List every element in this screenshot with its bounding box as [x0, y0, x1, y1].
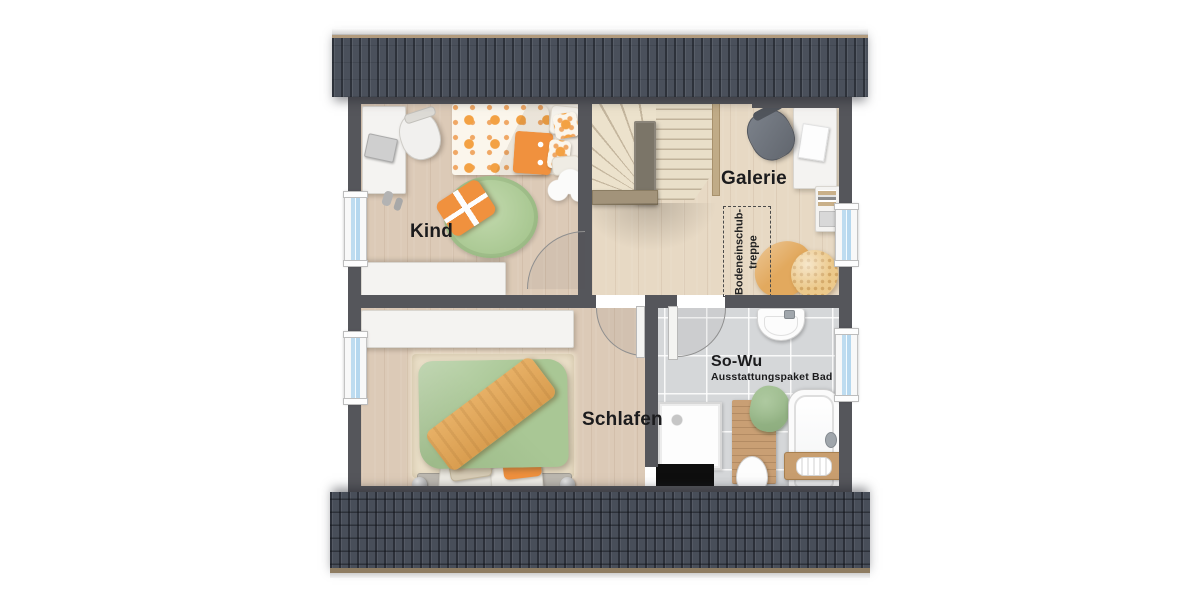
bathtub-faucet-icon	[825, 432, 837, 448]
window-cap	[834, 395, 859, 402]
window-glass	[842, 210, 850, 260]
label-room-galerie: Galerie	[721, 168, 787, 190]
stairs-handrail	[712, 100, 720, 196]
window-glass	[351, 338, 359, 398]
pouf-icon	[791, 250, 838, 298]
wall-kind-schlafen	[361, 295, 596, 308]
roof-bottom-fascia	[330, 573, 870, 578]
pillow-polka-1	[552, 111, 580, 140]
stairs-flight	[656, 100, 712, 200]
label-room-schlafen: Schlafen	[582, 409, 663, 431]
loft-ladder-icon: Bodeneinschub- treppe	[723, 206, 771, 297]
roof-top-batten	[332, 35, 868, 38]
wall-right	[839, 95, 852, 500]
label-room-kind: Kind	[410, 221, 453, 243]
door-leaf-schlafen	[636, 306, 645, 358]
caddy-towel	[796, 457, 832, 476]
stairs-shadow	[592, 203, 722, 255]
washbasin-faucet-icon	[784, 310, 795, 319]
window-cap	[834, 328, 859, 335]
label-bad-title: So-Wu	[711, 353, 762, 371]
window-cap	[834, 203, 859, 210]
window-galerie-right	[835, 204, 858, 266]
roof-top-fascia	[332, 28, 868, 35]
roof-top	[332, 28, 868, 97]
loft-ladder-line1: Bodeneinschub-	[733, 208, 747, 294]
floor-plan: Bodeneinschub- treppe Kind Galerie	[0, 0, 1200, 600]
bed-kind	[452, 104, 580, 175]
bathtub-caddy	[784, 452, 844, 480]
wall-bad-left	[645, 295, 658, 467]
wardrobe-schlafen	[361, 310, 574, 348]
wall-bad-top-right	[725, 295, 839, 308]
window-cap	[834, 260, 859, 267]
wardrobe-kind	[361, 262, 506, 297]
loft-ladder-label: Bodeneinschub- treppe	[733, 208, 762, 294]
window-glass	[351, 198, 359, 260]
window-schlafen-left	[344, 332, 367, 404]
door-leaf-bad	[668, 306, 678, 360]
window-cap	[343, 191, 368, 198]
window-bad-right	[835, 329, 858, 401]
label-bad-subtitle: Ausstattungspaket Bad	[711, 371, 832, 383]
window-glass	[842, 335, 850, 395]
wall-left	[348, 95, 361, 500]
washbasin-bowl	[764, 316, 798, 336]
wall-top-galerie	[752, 97, 852, 108]
window-cap	[343, 260, 368, 267]
window-cap	[343, 398, 368, 405]
paper-on-desk	[797, 123, 829, 162]
window-kind-left	[344, 192, 367, 266]
bed-schlafen	[417, 360, 570, 499]
roof-bottom	[330, 492, 870, 578]
window-cap	[343, 331, 368, 338]
shower-icon	[658, 402, 722, 470]
loft-ladder-line2: treppe	[747, 208, 761, 294]
